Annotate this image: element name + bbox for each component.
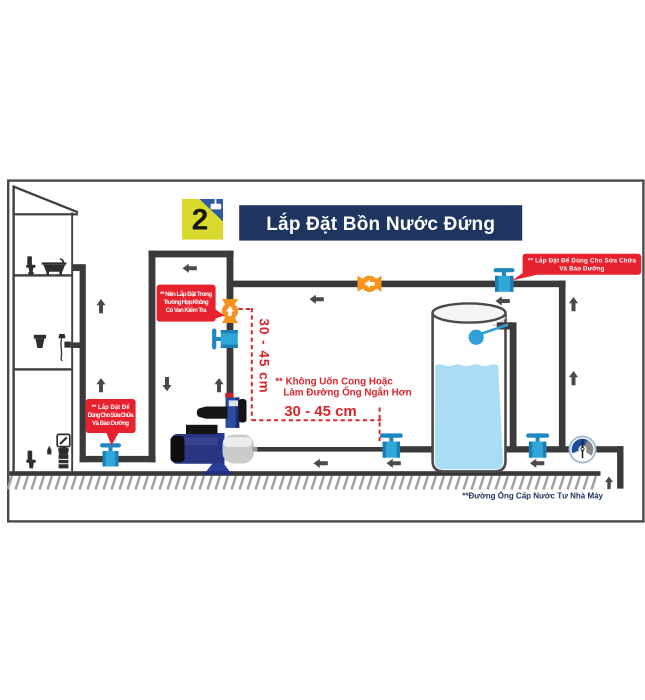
svg-text:** Nên Lắp Đặt Trong: ** Nên Lắp Đặt Trong bbox=[160, 291, 212, 298]
svg-text:** Lắp Đặt Để: ** Lắp Đặt Để bbox=[92, 404, 131, 411]
svg-text:Và Bảo Dưỡng: Và Bảo Dưỡng bbox=[559, 265, 604, 272]
svg-text:Lắp Đặt Bồn Nước Đứng: Lắp Đặt Bồn Nước Đứng bbox=[266, 213, 495, 235]
svg-text:Làm Đường Ống Ngắn Hơn: Làm Đường Ống Ngắn Hơn bbox=[283, 386, 411, 398]
svg-text:30 - 45 cm: 30 - 45 cm bbox=[284, 403, 357, 420]
svg-text:Có Van Kiểm Tra: Có Van Kiểm Tra bbox=[166, 307, 208, 314]
svg-text:30 - 45 cm: 30 - 45 cm bbox=[257, 318, 272, 393]
svg-text:2: 2 bbox=[192, 204, 209, 237]
svg-text:**Đường Ống Cấp Nước Tư Nhà Má: **Đường Ống Cấp Nước Tư Nhà Máy bbox=[462, 490, 603, 500]
svg-text:Trường Hợp Không: Trường Hợp Không bbox=[164, 299, 209, 306]
svg-text:** Lắp Đặt Để Dùng Cho Sửa Chữ: ** Lắp Đặt Để Dùng Cho Sửa Chữa bbox=[528, 257, 637, 264]
svg-text:Và Bảo Dưỡng: Và Bảo Dưỡng bbox=[92, 421, 129, 427]
svg-text:Dùng Cho Sửa Chữa: Dùng Cho Sửa Chữa bbox=[88, 413, 135, 419]
svg-text:** Không Uốn Cong Hoặc: ** Không Uốn Cong Hoặc bbox=[275, 377, 393, 388]
